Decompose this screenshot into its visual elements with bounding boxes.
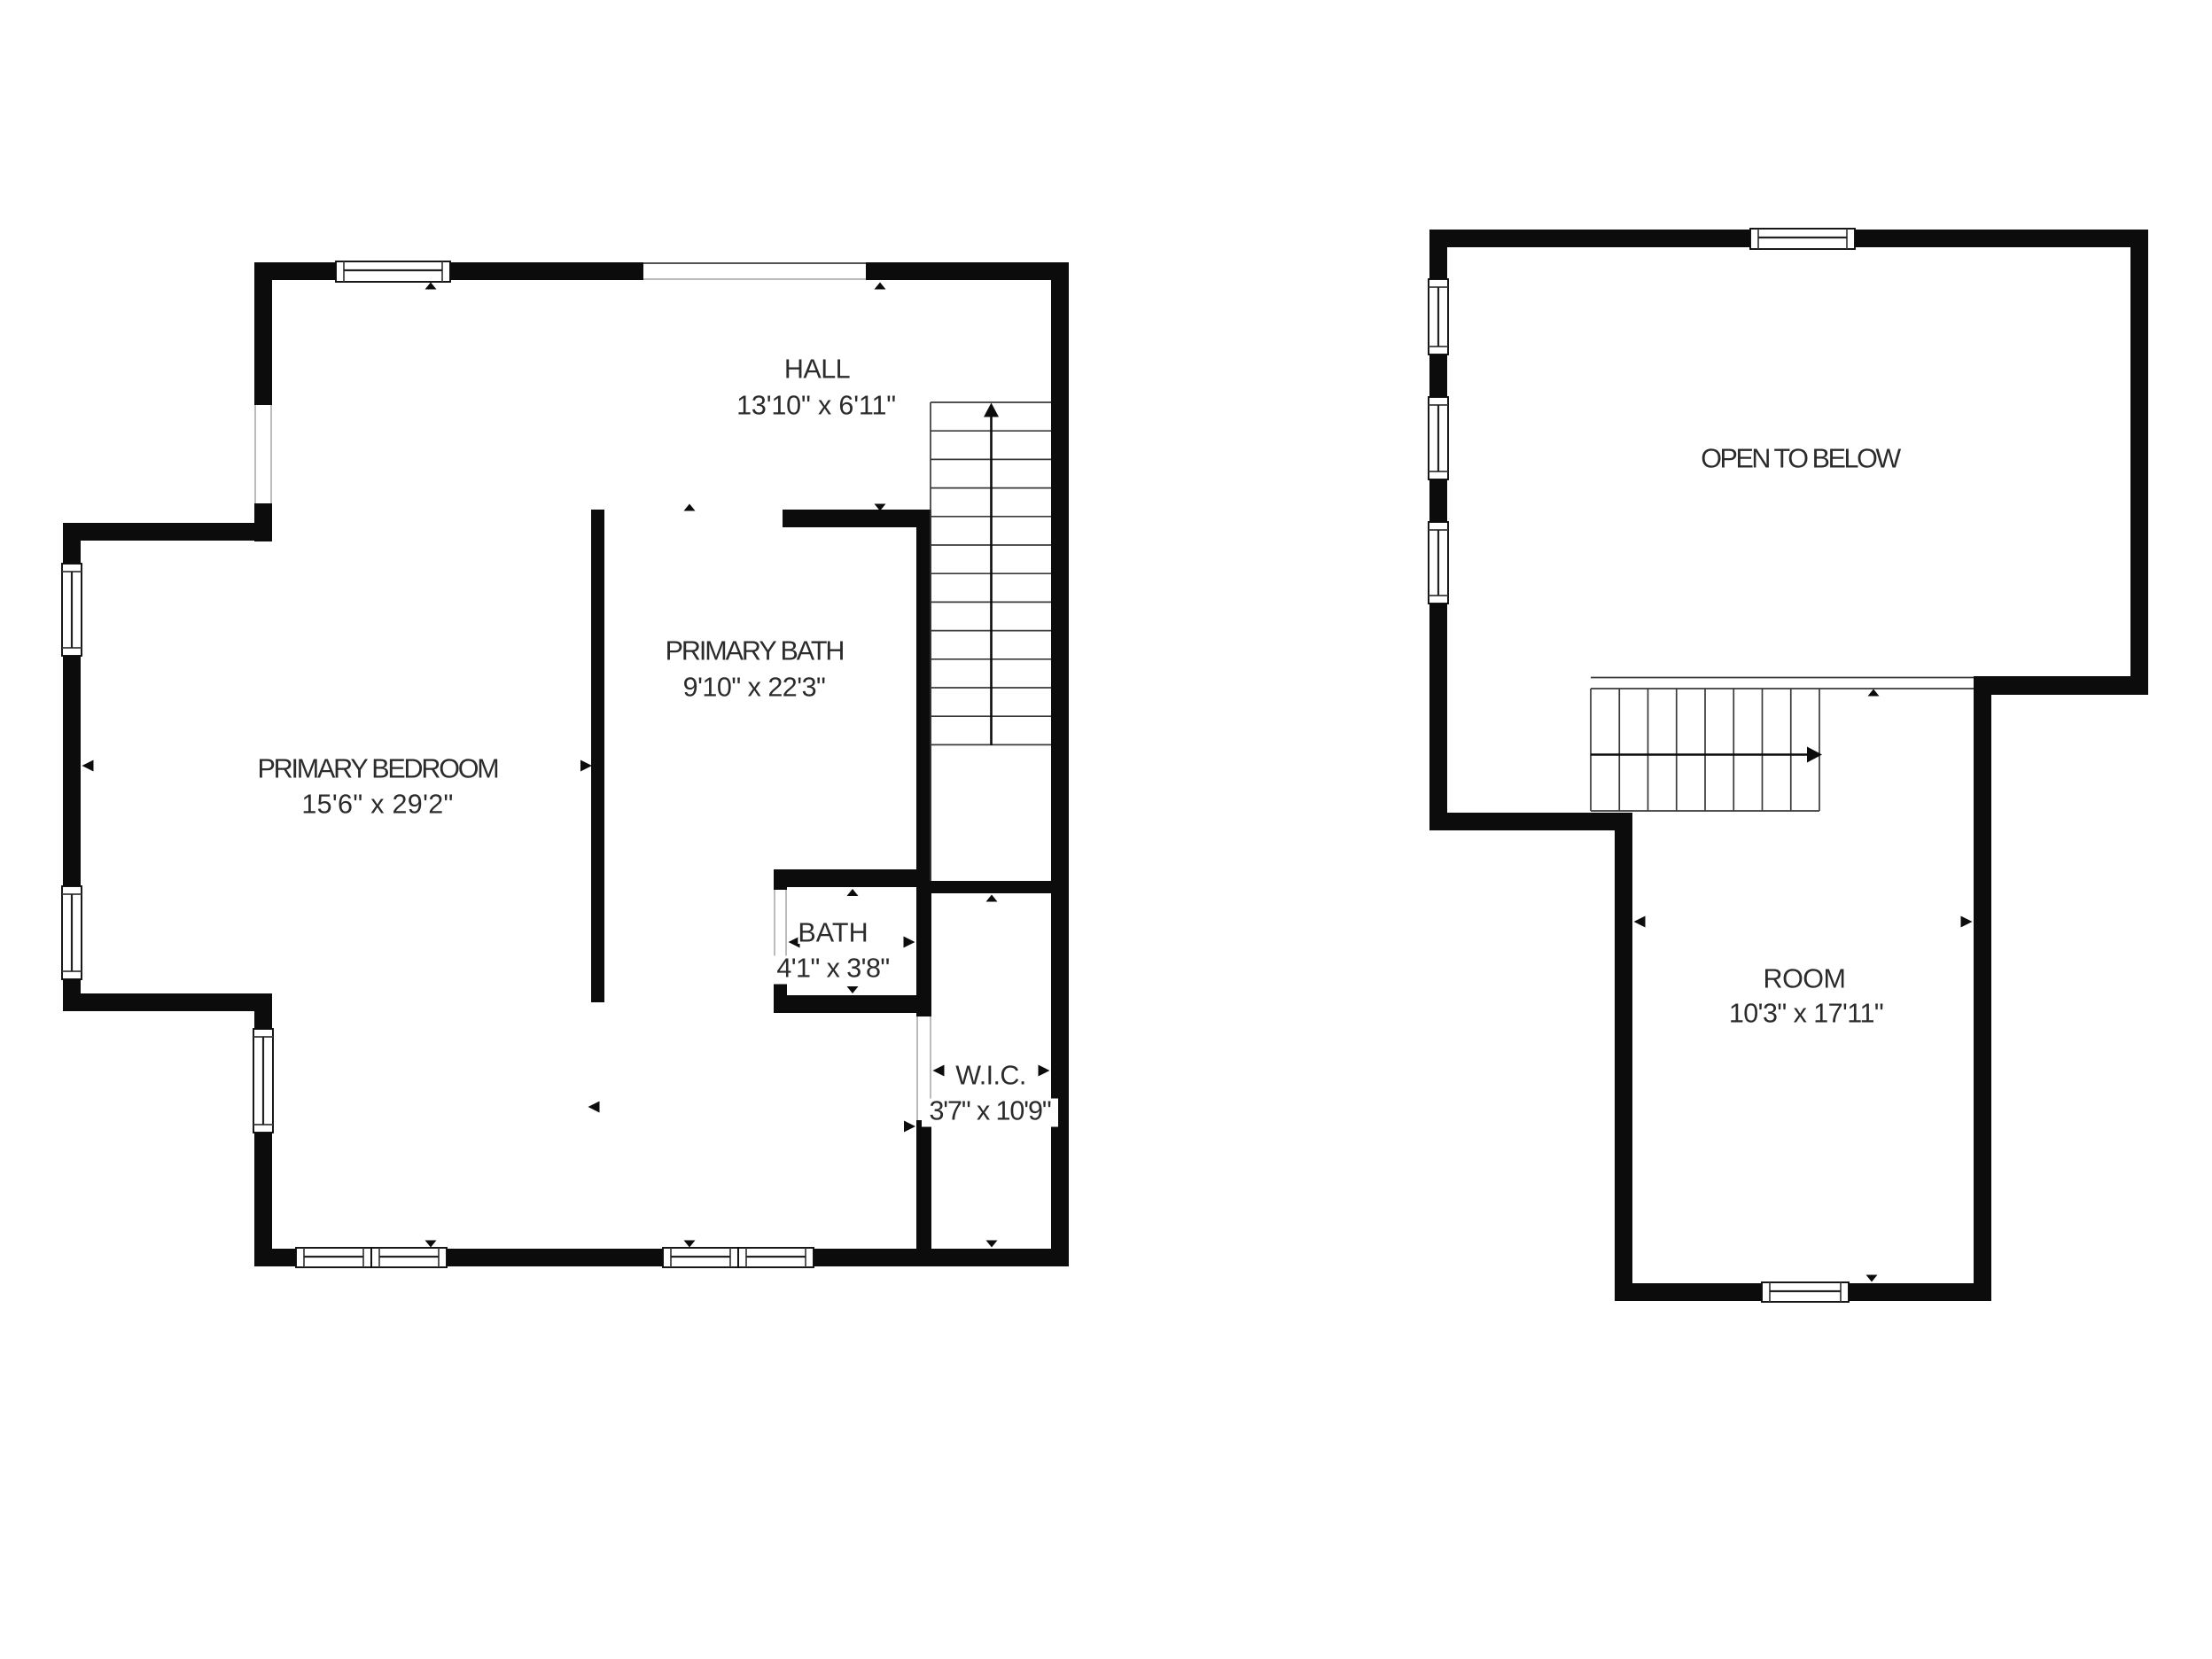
svg-text:15'6" x 29'2": 15'6" x 29'2" xyxy=(301,790,453,820)
svg-text:OPEN TO BELOW: OPEN TO BELOW xyxy=(1701,444,1901,474)
svg-text:9'10" x 22'3": 9'10" x 22'3" xyxy=(683,673,826,703)
svg-text:W.I.C.: W.I.C. xyxy=(955,1061,1025,1091)
svg-text:PRIMARY BATH: PRIMARY BATH xyxy=(666,636,844,666)
svg-text:10'3" x 17'11": 10'3" x 17'11" xyxy=(1729,999,1883,1029)
svg-text:13'10" x 6'11": 13'10" x 6'11" xyxy=(736,391,896,421)
svg-text:HALL: HALL xyxy=(784,354,850,385)
svg-text:PRIMARY BEDROOM: PRIMARY BEDROOM xyxy=(258,754,498,784)
svg-text:4'1" x 3'8": 4'1" x 3'8" xyxy=(776,954,889,984)
svg-text:BATH: BATH xyxy=(798,918,868,948)
svg-text:3'7" x 10'9": 3'7" x 10'9" xyxy=(929,1096,1050,1126)
svg-text:ROOM: ROOM xyxy=(1764,964,1846,994)
